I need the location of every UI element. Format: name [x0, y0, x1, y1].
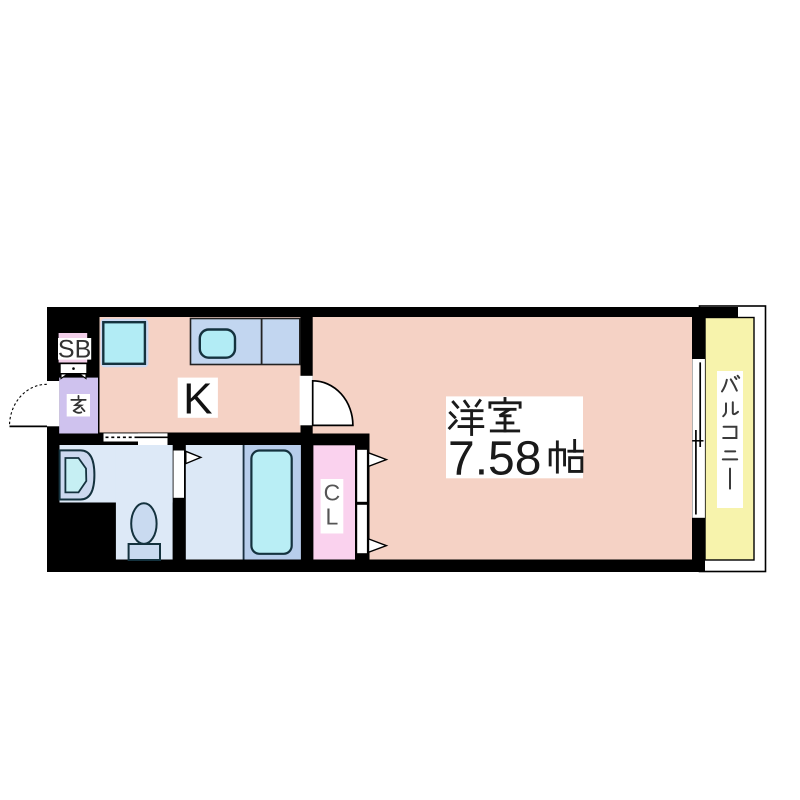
svg-text:SB: SB	[58, 336, 91, 364]
svg-text:C: C	[324, 480, 341, 506]
svg-text:L: L	[326, 504, 339, 530]
svg-text:7.58: 7.58	[448, 433, 541, 486]
svg-text:K: K	[183, 375, 212, 424]
